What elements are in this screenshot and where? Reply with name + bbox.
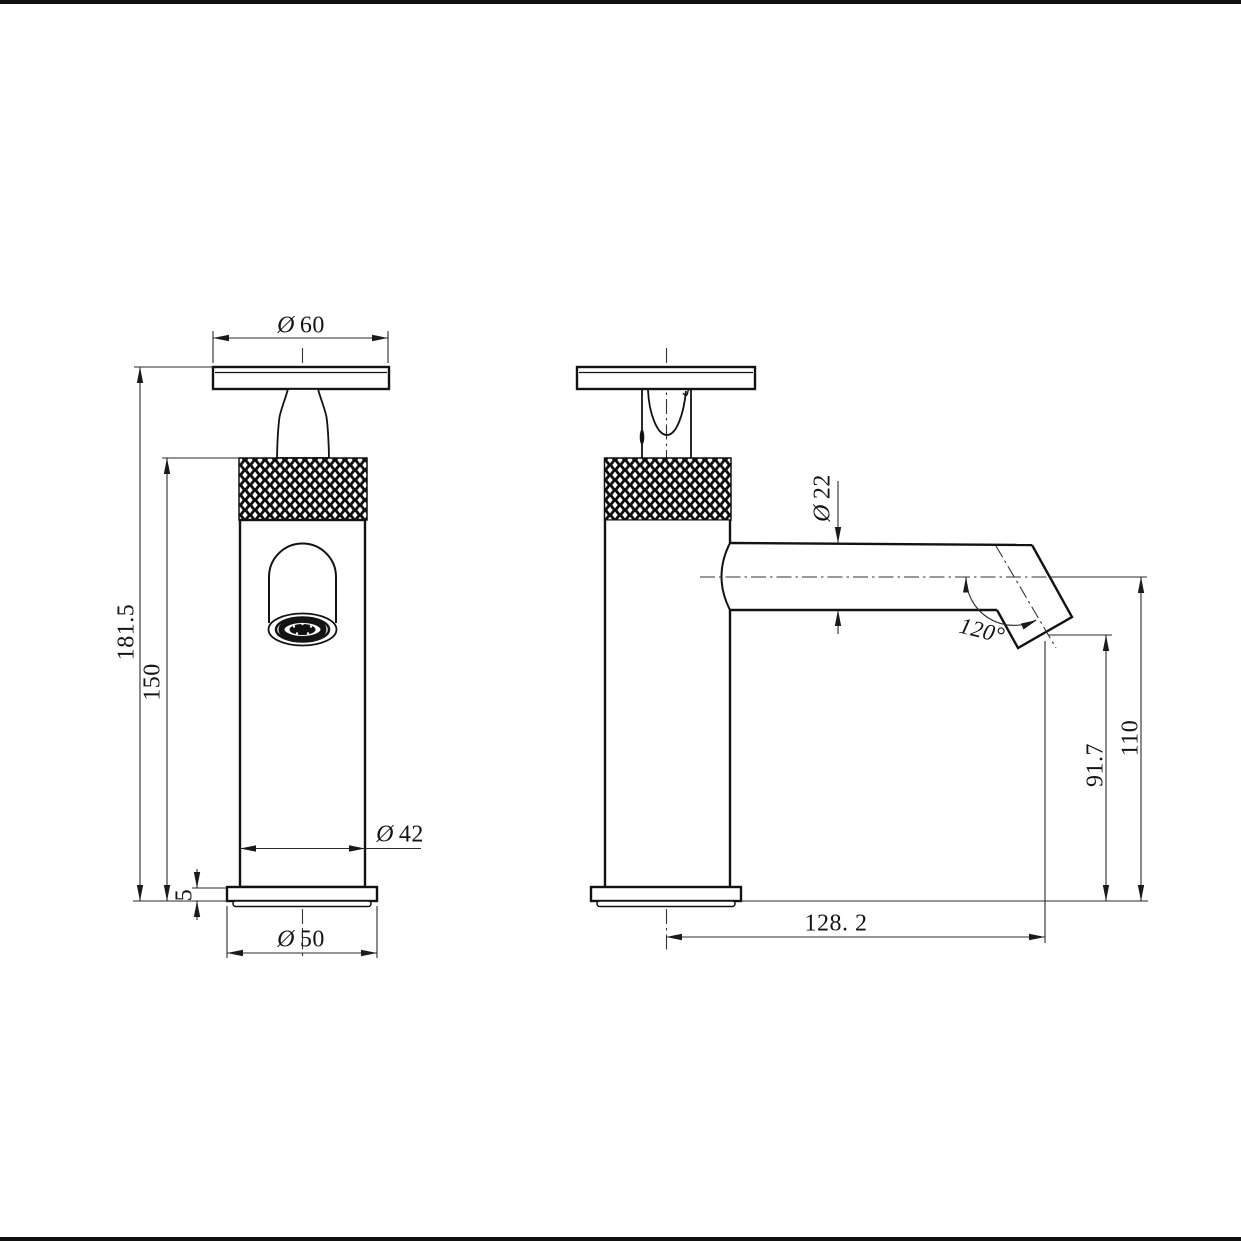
dim-upper-height-geometry xyxy=(162,458,239,901)
base-flange-side xyxy=(591,887,741,901)
side-view xyxy=(577,348,1072,952)
arrowhead xyxy=(666,934,682,940)
arrowhead xyxy=(164,458,170,474)
base-flange-front xyxy=(227,887,377,901)
base-lip-front xyxy=(233,901,371,907)
arrowhead xyxy=(372,335,388,341)
diameter-symbol: Ø xyxy=(810,504,836,522)
dim-value: 91.7 xyxy=(1083,743,1109,787)
spout-pipe-top xyxy=(730,543,1032,545)
dim-value: 181.5 xyxy=(114,604,140,661)
dim-label-base-thickness: 5 xyxy=(172,889,199,902)
dim-overall-height-geometry xyxy=(133,367,227,901)
dim-value: 22 xyxy=(810,474,836,499)
dim-label-upper-height: 150 xyxy=(140,663,167,701)
drawing-sheet: Ø60 181.5 150 Ø42 5 Ø50 Ø22 120° 91.7 11… xyxy=(0,0,1241,1241)
dim-label-overall-height: 181.5 xyxy=(114,604,141,661)
dim-label-axis-height: 110 xyxy=(1118,720,1145,757)
technical-drawing-svg xyxy=(0,0,1241,1241)
diameter-symbol: Ø xyxy=(376,822,394,848)
body-front xyxy=(240,520,365,887)
arrowhead xyxy=(361,950,377,956)
handle-stem-front xyxy=(277,389,329,458)
front-view xyxy=(213,348,389,958)
arrowhead xyxy=(835,527,841,543)
spoke-tip-marker xyxy=(640,430,645,445)
knurl-band-front xyxy=(239,458,367,520)
handle-disc-front xyxy=(213,367,389,389)
dim-value: 42 xyxy=(399,822,424,848)
arrowhead xyxy=(227,950,243,956)
arrowhead xyxy=(1103,635,1109,651)
arrowhead xyxy=(835,610,841,626)
aerator xyxy=(269,614,337,646)
dim-value: 110 xyxy=(1118,720,1144,757)
body-side xyxy=(605,520,730,887)
arrowhead xyxy=(194,872,200,888)
arrowhead xyxy=(1138,885,1144,901)
arrowhead xyxy=(213,335,229,341)
dim-label-outlet-height: 91.7 xyxy=(1083,743,1110,787)
arrowhead xyxy=(1138,577,1144,593)
dim-label-handle-diameter: Ø60 xyxy=(277,313,325,340)
arrowhead xyxy=(1021,620,1037,630)
spout-pipe xyxy=(730,543,1072,648)
dim-value: 60 xyxy=(300,313,325,339)
dim-value: 50 xyxy=(300,927,325,953)
handle-disc-side xyxy=(577,367,755,389)
dim-label-spout-reach: 128. 2 xyxy=(805,911,868,938)
arrowhead xyxy=(963,577,969,593)
arrowhead xyxy=(137,367,143,383)
knurl-band-side xyxy=(605,458,732,520)
arrowhead xyxy=(194,901,200,917)
dim-value: 128. 2 xyxy=(805,911,868,937)
dim-label-base-diameter: Ø50 xyxy=(277,927,325,954)
dim-value: 5 xyxy=(172,889,198,902)
spout-tip xyxy=(997,545,1072,648)
arrowhead xyxy=(1029,934,1045,940)
diameter-symbol: Ø xyxy=(277,927,295,953)
dim-value: 150 xyxy=(140,663,166,701)
arrowhead xyxy=(137,885,143,901)
diameter-symbol: Ø xyxy=(277,313,295,339)
dim-label-spout-diameter: Ø22 xyxy=(810,474,837,522)
base-lip-side xyxy=(597,901,735,907)
arrowhead xyxy=(164,885,170,901)
dim-heights-geometry xyxy=(741,577,1148,901)
dim-label-body-diameter: Ø42 xyxy=(376,822,424,849)
arrowhead xyxy=(1103,885,1109,901)
